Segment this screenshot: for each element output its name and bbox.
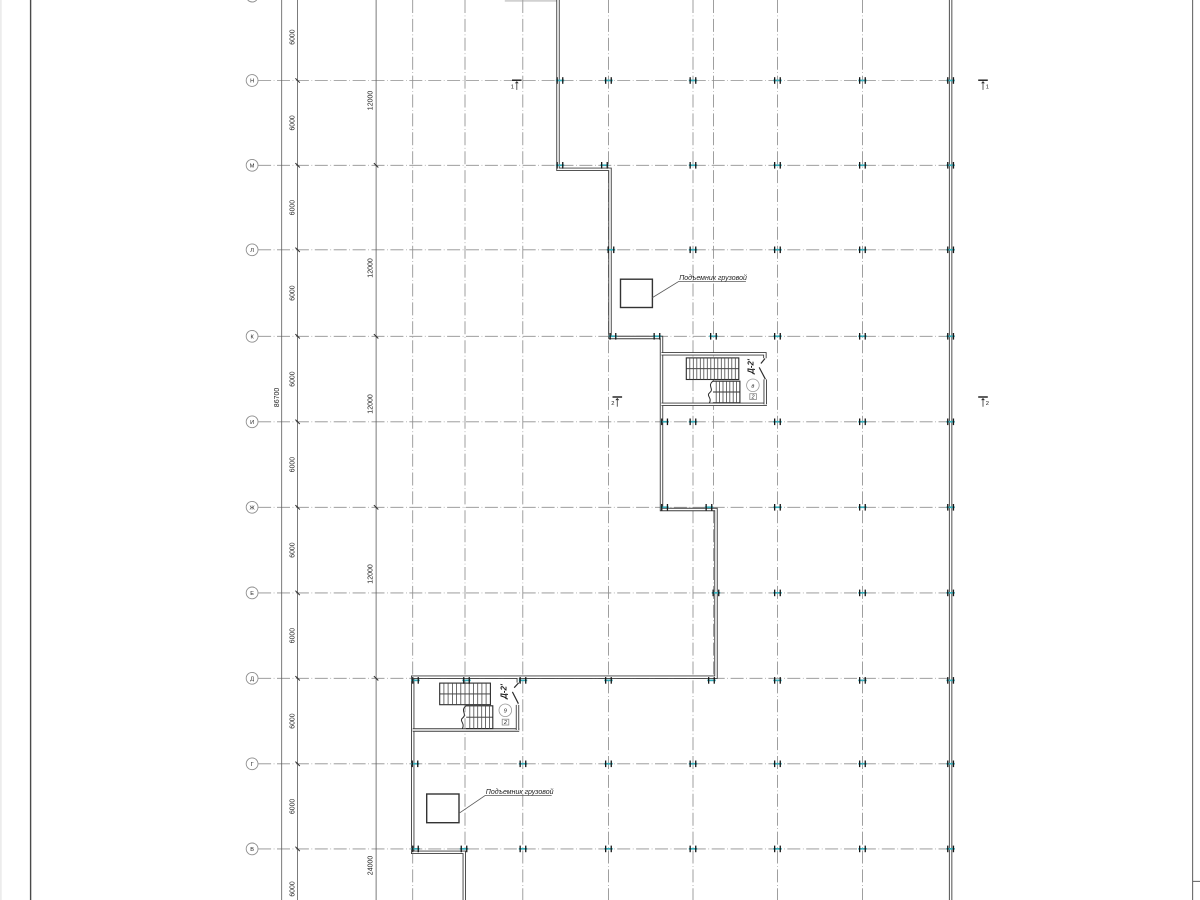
svg-text:24000: 24000 — [366, 856, 375, 875]
svg-text:6000: 6000 — [287, 29, 296, 44]
svg-text:2: 2 — [751, 394, 755, 400]
svg-text:1: 1 — [511, 84, 514, 90]
svg-text:6000: 6000 — [287, 115, 296, 130]
svg-text:86700: 86700 — [272, 388, 281, 407]
svg-text:6000: 6000 — [287, 200, 296, 215]
svg-text:Н: Н — [250, 79, 254, 85]
svg-text:12000: 12000 — [366, 564, 375, 583]
svg-text:Г: Г — [251, 762, 254, 768]
svg-text:В: В — [250, 847, 254, 853]
svg-text:6000: 6000 — [287, 713, 296, 728]
svg-text:И: И — [250, 420, 254, 426]
svg-text:12000: 12000 — [366, 394, 375, 413]
svg-text:Д: Д — [250, 676, 254, 682]
svg-text:Д-2': Д-2' — [746, 358, 755, 375]
svg-text:Подъемник грузовой: Подъемник грузовой — [679, 274, 747, 282]
svg-text:М: М — [250, 163, 255, 169]
svg-text:в: в — [751, 383, 754, 389]
svg-text:12000: 12000 — [366, 91, 375, 110]
svg-text:Е: Е — [250, 591, 254, 597]
svg-text:6000: 6000 — [287, 628, 296, 643]
svg-text:12000: 12000 — [366, 258, 375, 277]
svg-text:2: 2 — [986, 401, 989, 407]
svg-text:Подъемник грузовой: Подъемник грузовой — [486, 788, 554, 796]
svg-text:1: 1 — [986, 84, 989, 90]
svg-text:Ж: Ж — [250, 505, 256, 511]
svg-text:6000: 6000 — [287, 285, 296, 300]
svg-text:6000: 6000 — [287, 799, 296, 814]
svg-text:2: 2 — [503, 720, 507, 726]
svg-text:2: 2 — [611, 401, 614, 407]
svg-text:Л: Л — [250, 248, 254, 254]
svg-text:6000: 6000 — [287, 371, 296, 386]
svg-text:6000: 6000 — [287, 542, 296, 557]
svg-text:Д-2': Д-2' — [500, 683, 509, 700]
svg-text:6000: 6000 — [287, 881, 296, 896]
svg-text:6000: 6000 — [287, 457, 296, 472]
